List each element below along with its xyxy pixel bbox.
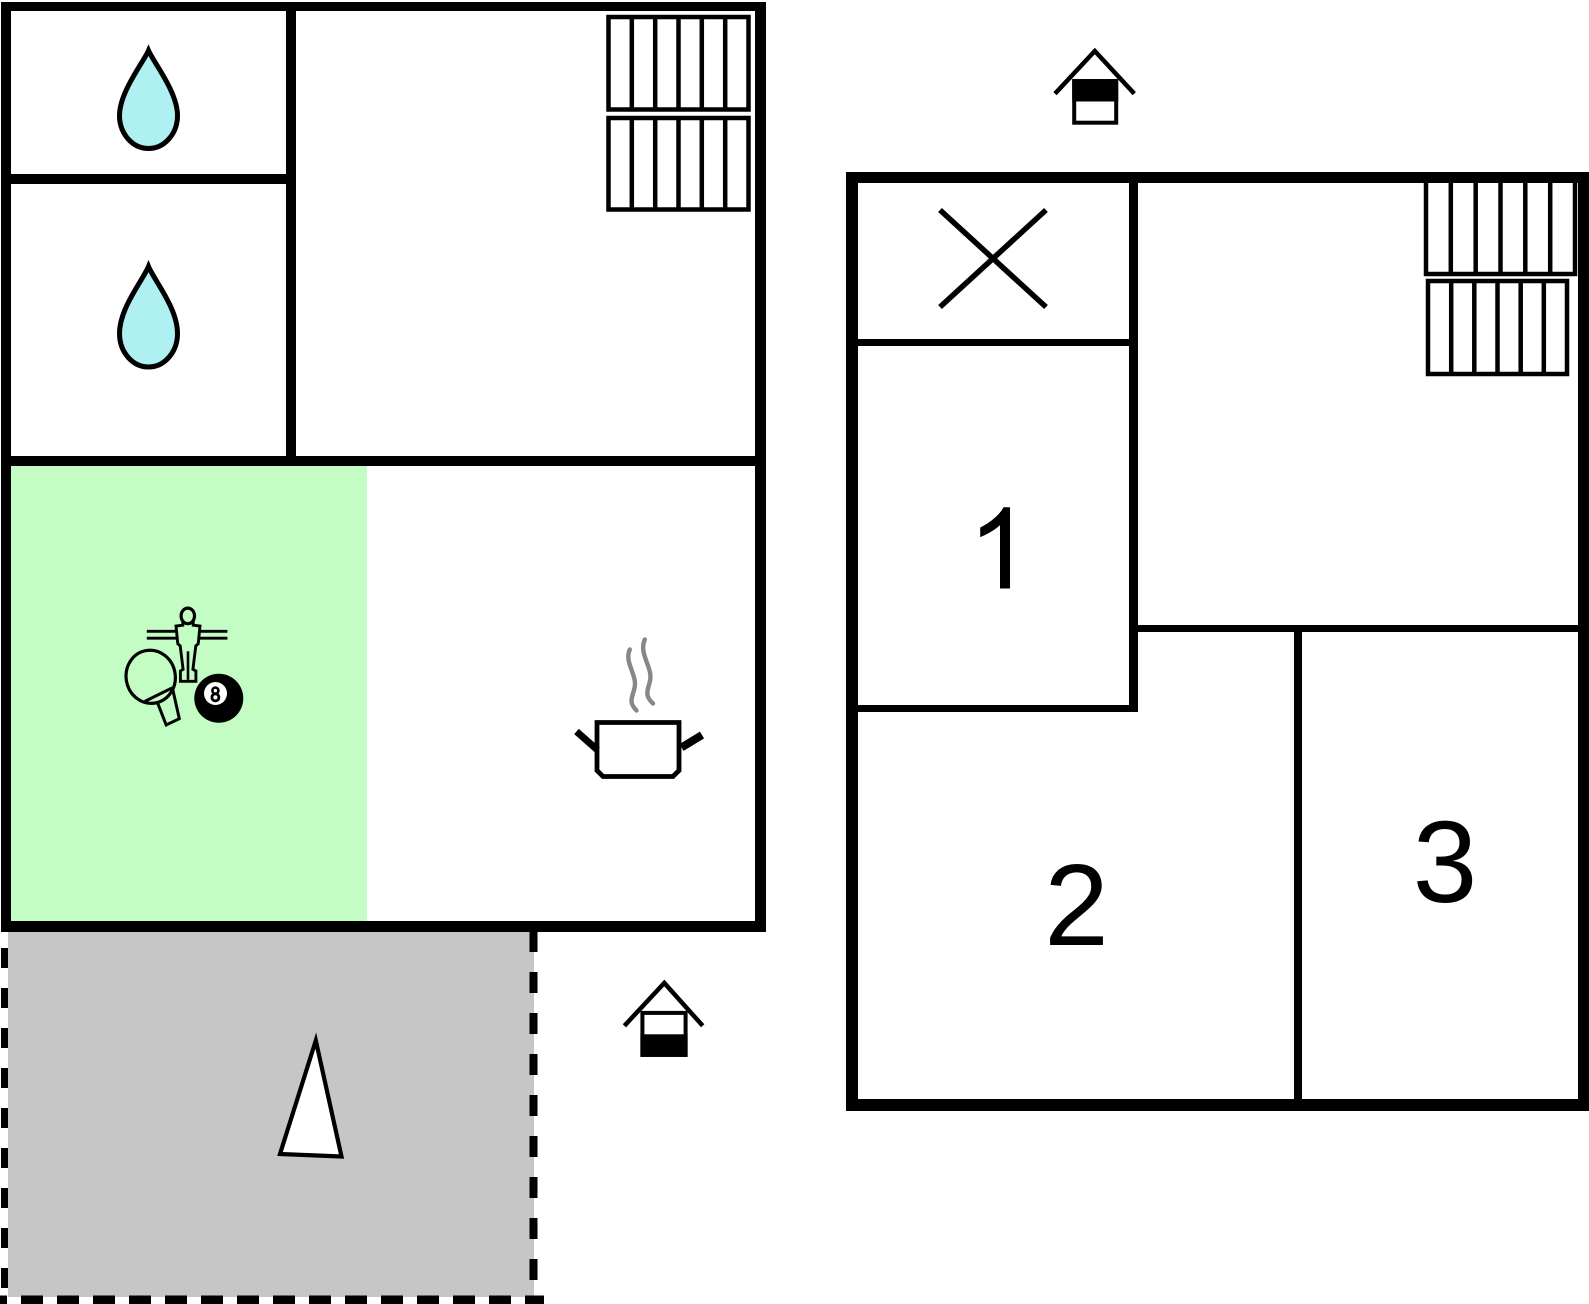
svg-text:2: 2 [1044, 840, 1109, 970]
svg-text:3: 3 [1413, 797, 1478, 927]
